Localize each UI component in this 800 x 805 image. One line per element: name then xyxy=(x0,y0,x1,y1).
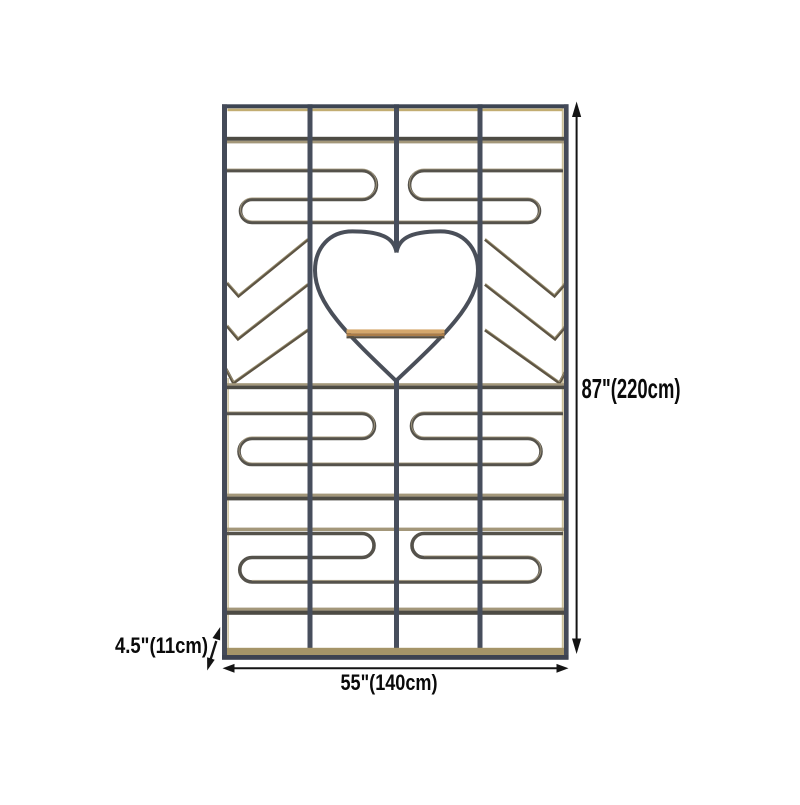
svg-text:55"(140cm): 55"(140cm) xyxy=(341,670,438,695)
svg-text:4.5"(11cm): 4.5"(11cm) xyxy=(115,633,208,658)
svg-text:87"(220cm): 87"(220cm) xyxy=(582,373,681,404)
